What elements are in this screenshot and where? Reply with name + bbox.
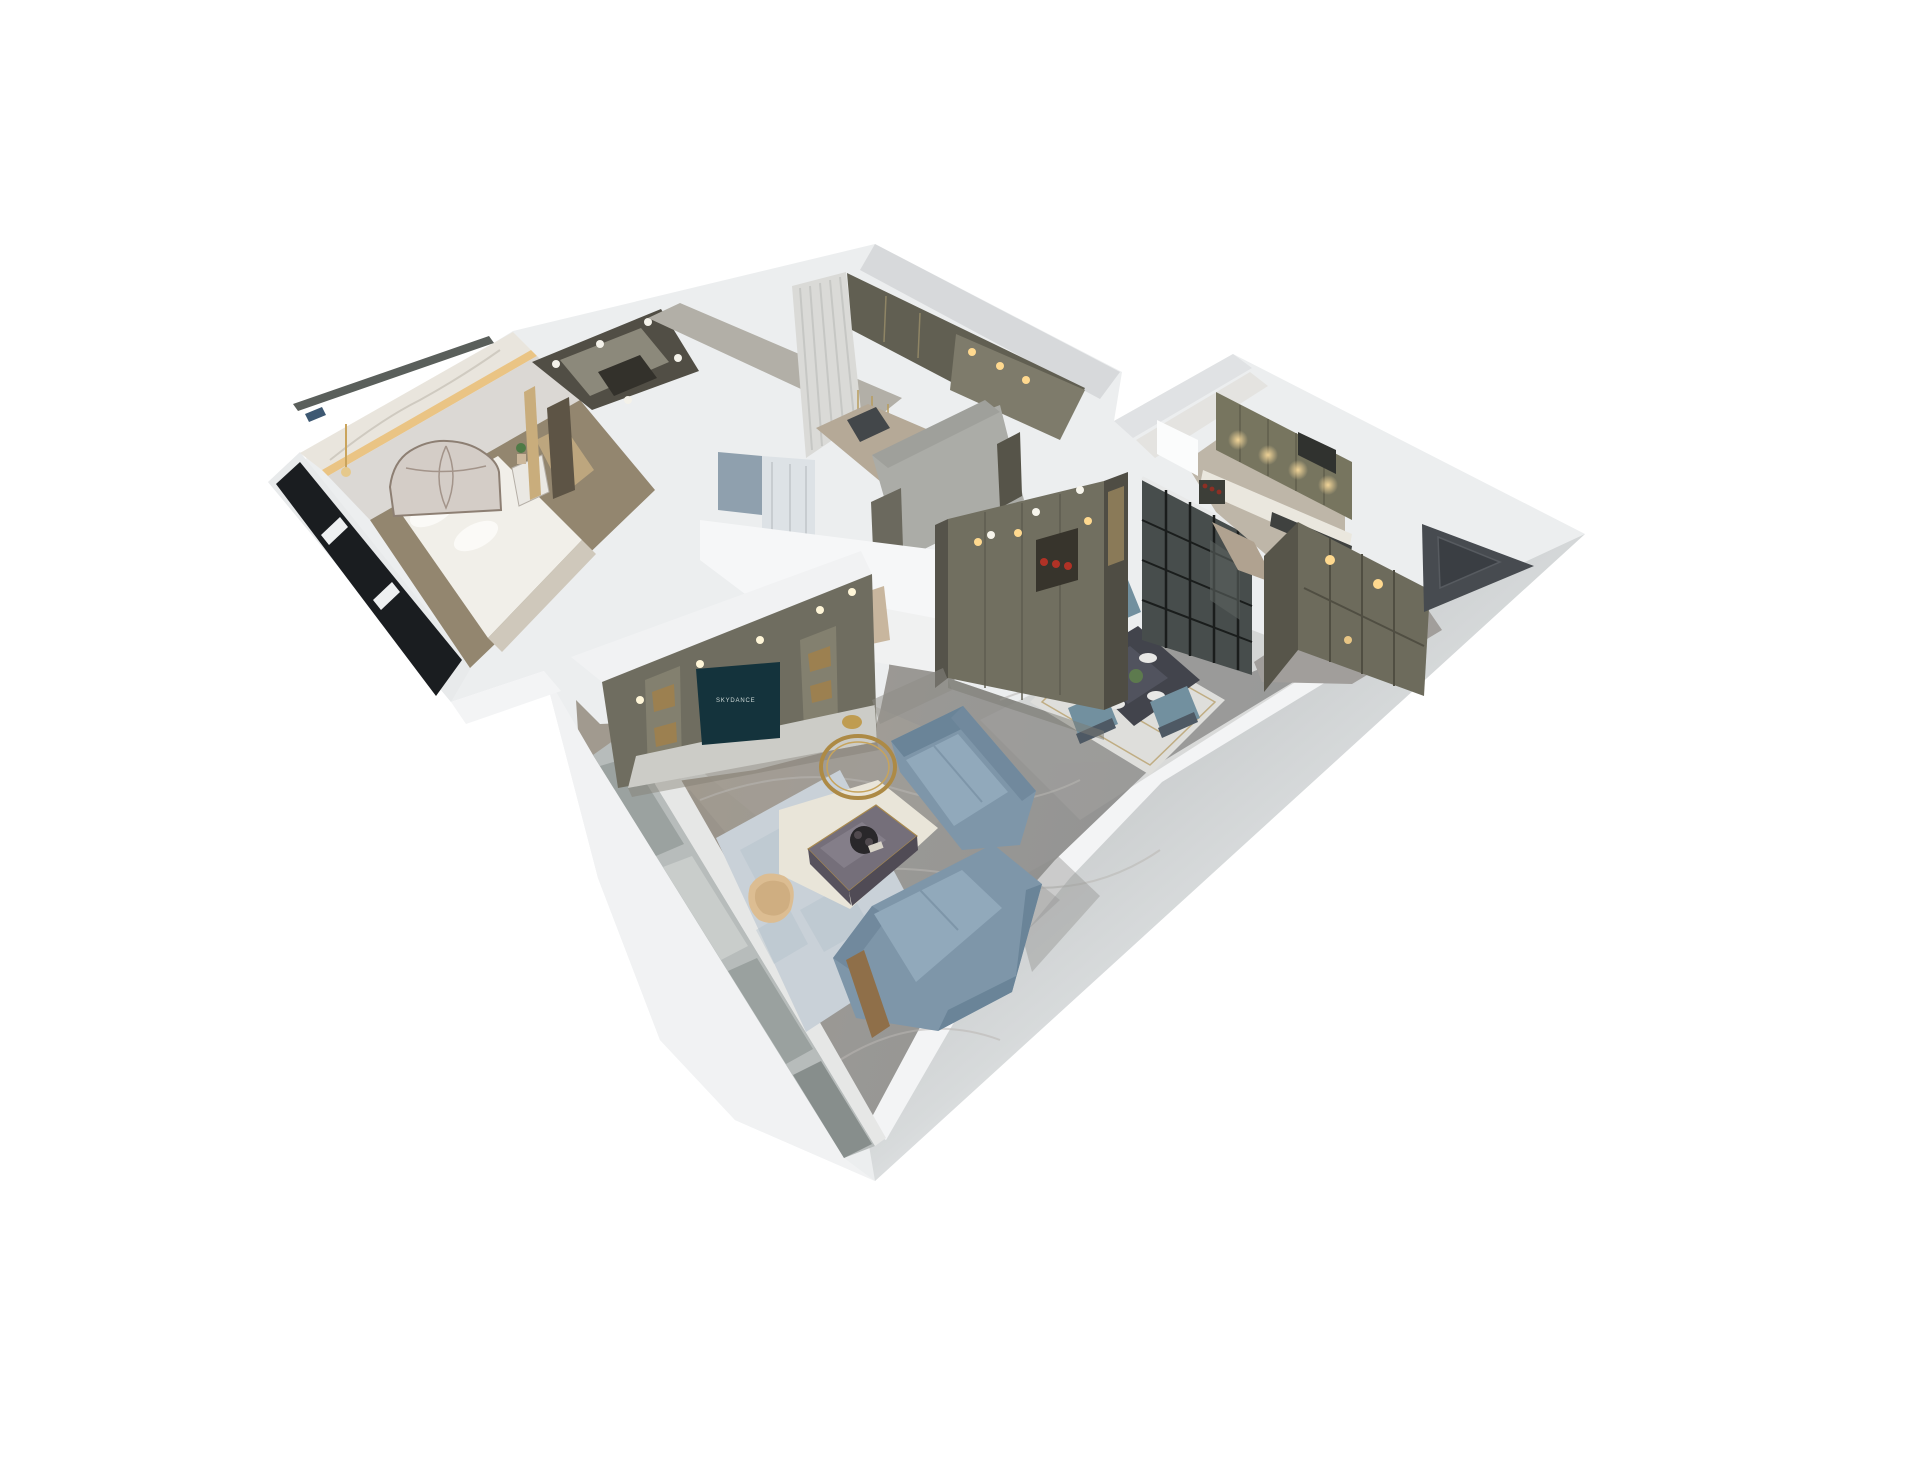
svg-text:SKYDANCE: SKYDANCE bbox=[716, 698, 755, 704]
